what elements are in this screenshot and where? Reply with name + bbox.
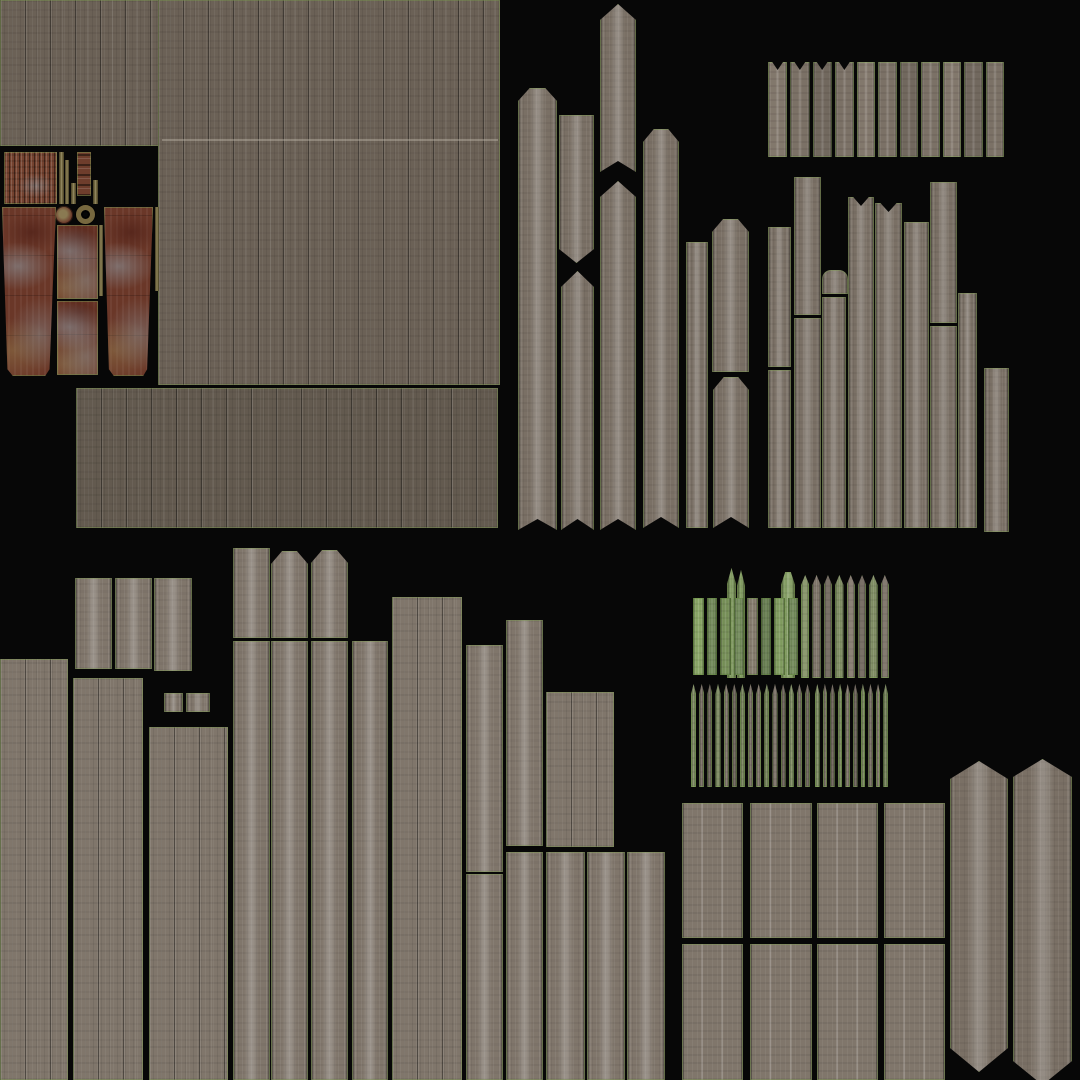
- grid-panel-r2c3: [817, 944, 878, 1080]
- grid-panel-r2c4: [884, 944, 945, 1080]
- right-plank-2-upper: [794, 177, 821, 315]
- bottom-plank-4-upper: [233, 548, 270, 638]
- picket-row-2-left-picket-5: [724, 684, 729, 787]
- picket-row-2-right-picket-7: [861, 684, 866, 787]
- bottom-board-wide: [392, 597, 462, 1080]
- picket-row-2-left-picket-14: [797, 684, 802, 787]
- right-plank-7-upper: [930, 182, 957, 323]
- picket-row-2-right-picket-3: [830, 684, 835, 787]
- picket-group-right-picket-8: [881, 575, 889, 678]
- bottom-plank-3: [154, 578, 192, 671]
- picket-row-2-right-picket-9: [876, 684, 881, 787]
- picket-row-2-left-picket-1: [691, 684, 696, 787]
- khaki-strip-2: [65, 160, 69, 204]
- right-plank-7-lower: [930, 326, 957, 528]
- moss-picket-group-left-picket-3: [720, 598, 731, 675]
- bottom-plank-6-lower: [311, 641, 348, 1080]
- grid-panel-r1c4: [884, 803, 945, 938]
- right-knob-piece: [822, 270, 848, 294]
- mid-plank-f: [712, 219, 749, 372]
- picket-row-2-left-picket-9: [756, 684, 761, 787]
- fence-strip-flat-picket-1: [857, 62, 875, 157]
- bottom-plank-10: [546, 852, 585, 1080]
- rust-panel-left: [2, 207, 56, 376]
- khaki-strip-3: [71, 183, 76, 204]
- small-square-2: [186, 693, 210, 712]
- bottom-board-2: [73, 678, 143, 1080]
- mid-plank-a: [518, 88, 557, 530]
- moss-picket-group-left-picket-4: [734, 598, 745, 675]
- bottom-plank-2: [115, 578, 152, 669]
- grid-panel-r1c1: [682, 803, 743, 938]
- khaki-strip-mid: [99, 225, 103, 296]
- picket-row-2-right: [815, 684, 888, 787]
- picket-row-2-left-picket-10: [764, 684, 769, 787]
- picket-row-2-left: [691, 684, 810, 787]
- mid-plank-c-lower: [600, 181, 636, 530]
- picket-group-right-picket-4: [835, 575, 843, 678]
- moss-picket-group-left-picket-7: [774, 598, 785, 675]
- rust-corrugated-sheet: [4, 152, 57, 204]
- right-plank-9: [984, 368, 1009, 532]
- picket-row-2-right-picket-8: [868, 684, 873, 787]
- picket-row-2-left-picket-15: [805, 684, 810, 787]
- bottom-plank-8-upper: [466, 645, 503, 872]
- fence-strip-notched-picket-4: [835, 62, 854, 157]
- moss-picket-group-left-picket-2: [707, 598, 718, 675]
- bottom-plank-5-upper: [271, 551, 308, 638]
- fence-strip-flat-picket-2: [878, 62, 896, 157]
- picket-row-2-right-picket-10: [883, 684, 888, 787]
- right-plank-1-upper: [768, 227, 791, 367]
- bottom-plank-9-lower: [506, 852, 543, 1080]
- right-plank-2-lower: [794, 318, 821, 528]
- picket-group-right-picket-7: [869, 575, 877, 678]
- rust-panel-right: [104, 207, 153, 376]
- picket-row-2-right-picket-2: [823, 684, 828, 787]
- picket-group-right-picket-6: [858, 575, 866, 678]
- bottom-plank-9-upper: [506, 620, 543, 846]
- top-big-block: [158, 0, 500, 385]
- fence-strip-notched-picket-2: [790, 62, 809, 157]
- bottom-plank-12: [627, 852, 665, 1080]
- metal-ring: [76, 205, 95, 224]
- mid-plank-b-upper: [559, 115, 594, 263]
- bottom-plank-7: [352, 641, 388, 1080]
- bottom-plank-1: [75, 578, 112, 669]
- picket-row-2-left-picket-13: [789, 684, 794, 787]
- picket-row-2-left-picket-12: [781, 684, 786, 787]
- picket-row-2-left-picket-7: [740, 684, 745, 787]
- grid-panel-r1c2: [750, 803, 812, 938]
- picket-row-2-left-picket-11: [772, 684, 777, 787]
- right-plank-6: [904, 222, 929, 528]
- picket-group-right-picket-3: [824, 575, 832, 678]
- mid-plank-b-lower: [561, 271, 594, 530]
- picket-row-2-right-picket-4: [838, 684, 843, 787]
- rust-panel-mid-upper: [57, 225, 98, 299]
- right-plank-1-lower: [768, 370, 791, 528]
- fence-strip-notched-picket-1: [768, 62, 787, 157]
- bottom-plank-5-lower: [271, 641, 308, 1080]
- picket-row-2-left-picket-3: [707, 684, 712, 787]
- moss-picket-group-left-picket-1: [693, 598, 704, 675]
- picket-row-2-right-picket-6: [853, 684, 858, 787]
- bottom-plank-4-lower: [233, 641, 270, 1080]
- mid-plank-g: [713, 377, 749, 528]
- mid-plank-c-upper: [600, 4, 636, 172]
- mid-wide-block: [76, 388, 498, 528]
- grid-panel-r2c1: [682, 944, 743, 1080]
- khaki-strip-4: [93, 180, 98, 204]
- top-big-block-seam: [162, 139, 498, 141]
- fence-strip-notched: [768, 62, 854, 157]
- picket-group-right-picket-1: [801, 575, 809, 678]
- mid-plank-e: [686, 242, 708, 528]
- fence-strip-notched-picket-3: [813, 62, 832, 157]
- right-plank-4: [848, 197, 874, 528]
- picket-row-2-right-picket-5: [845, 684, 850, 787]
- metal-disc: [55, 206, 73, 224]
- fence-strip-flat-picket-5: [943, 62, 961, 157]
- rust-ladder-strip: [77, 152, 91, 196]
- bottom-plank-6-upper: [311, 550, 348, 638]
- grid-panel-r2c2: [750, 944, 812, 1080]
- picket-row-2-left-picket-6: [732, 684, 737, 787]
- grid-panel-r1c3: [817, 803, 878, 938]
- picket-group-right-picket-5: [847, 575, 855, 678]
- rust-panel-mid-lower: [57, 301, 98, 375]
- moss-picket-group-left: [693, 598, 798, 675]
- fence-strip-flat-picket-3: [900, 62, 918, 157]
- bottom-plank-8-lower: [466, 874, 503, 1080]
- moss-picket-group-left-picket-6: [761, 598, 772, 675]
- hex-pale-2: [1013, 759, 1072, 1080]
- bottom-plank-11: [587, 852, 625, 1080]
- picket-row-2-right-picket-1: [815, 684, 820, 787]
- bottom-board-mid: [546, 692, 614, 847]
- moss-picket-group-left-picket-8: [788, 598, 799, 675]
- khaki-strip-right: [155, 207, 159, 291]
- picket-group-right: [801, 575, 889, 678]
- fence-strip-flat-picket-4: [921, 62, 939, 157]
- bottom-board-3: [149, 727, 228, 1080]
- right-plank-3: [822, 297, 846, 528]
- fence-strip-flat-picket-7: [986, 62, 1004, 157]
- fence-strip-flat-picket-6: [964, 62, 982, 157]
- picket-group-right-picket-2: [812, 575, 820, 678]
- khaki-strip-1: [59, 152, 64, 204]
- picket-row-2-left-picket-2: [699, 684, 704, 787]
- right-plank-8: [958, 293, 977, 528]
- texture-atlas: [0, 0, 1080, 1080]
- right-plank-5: [875, 203, 902, 528]
- small-square-1: [164, 693, 183, 712]
- moss-picket-group-left-picket-5: [747, 598, 758, 675]
- mid-plank-d: [643, 129, 679, 528]
- picket-row-2-left-picket-4: [715, 684, 720, 787]
- picket-row-2-left-picket-8: [748, 684, 753, 787]
- fence-strip-flat: [857, 62, 1004, 157]
- hex-pale-1: [950, 761, 1008, 1072]
- bottom-board-left-edge: [0, 659, 68, 1080]
